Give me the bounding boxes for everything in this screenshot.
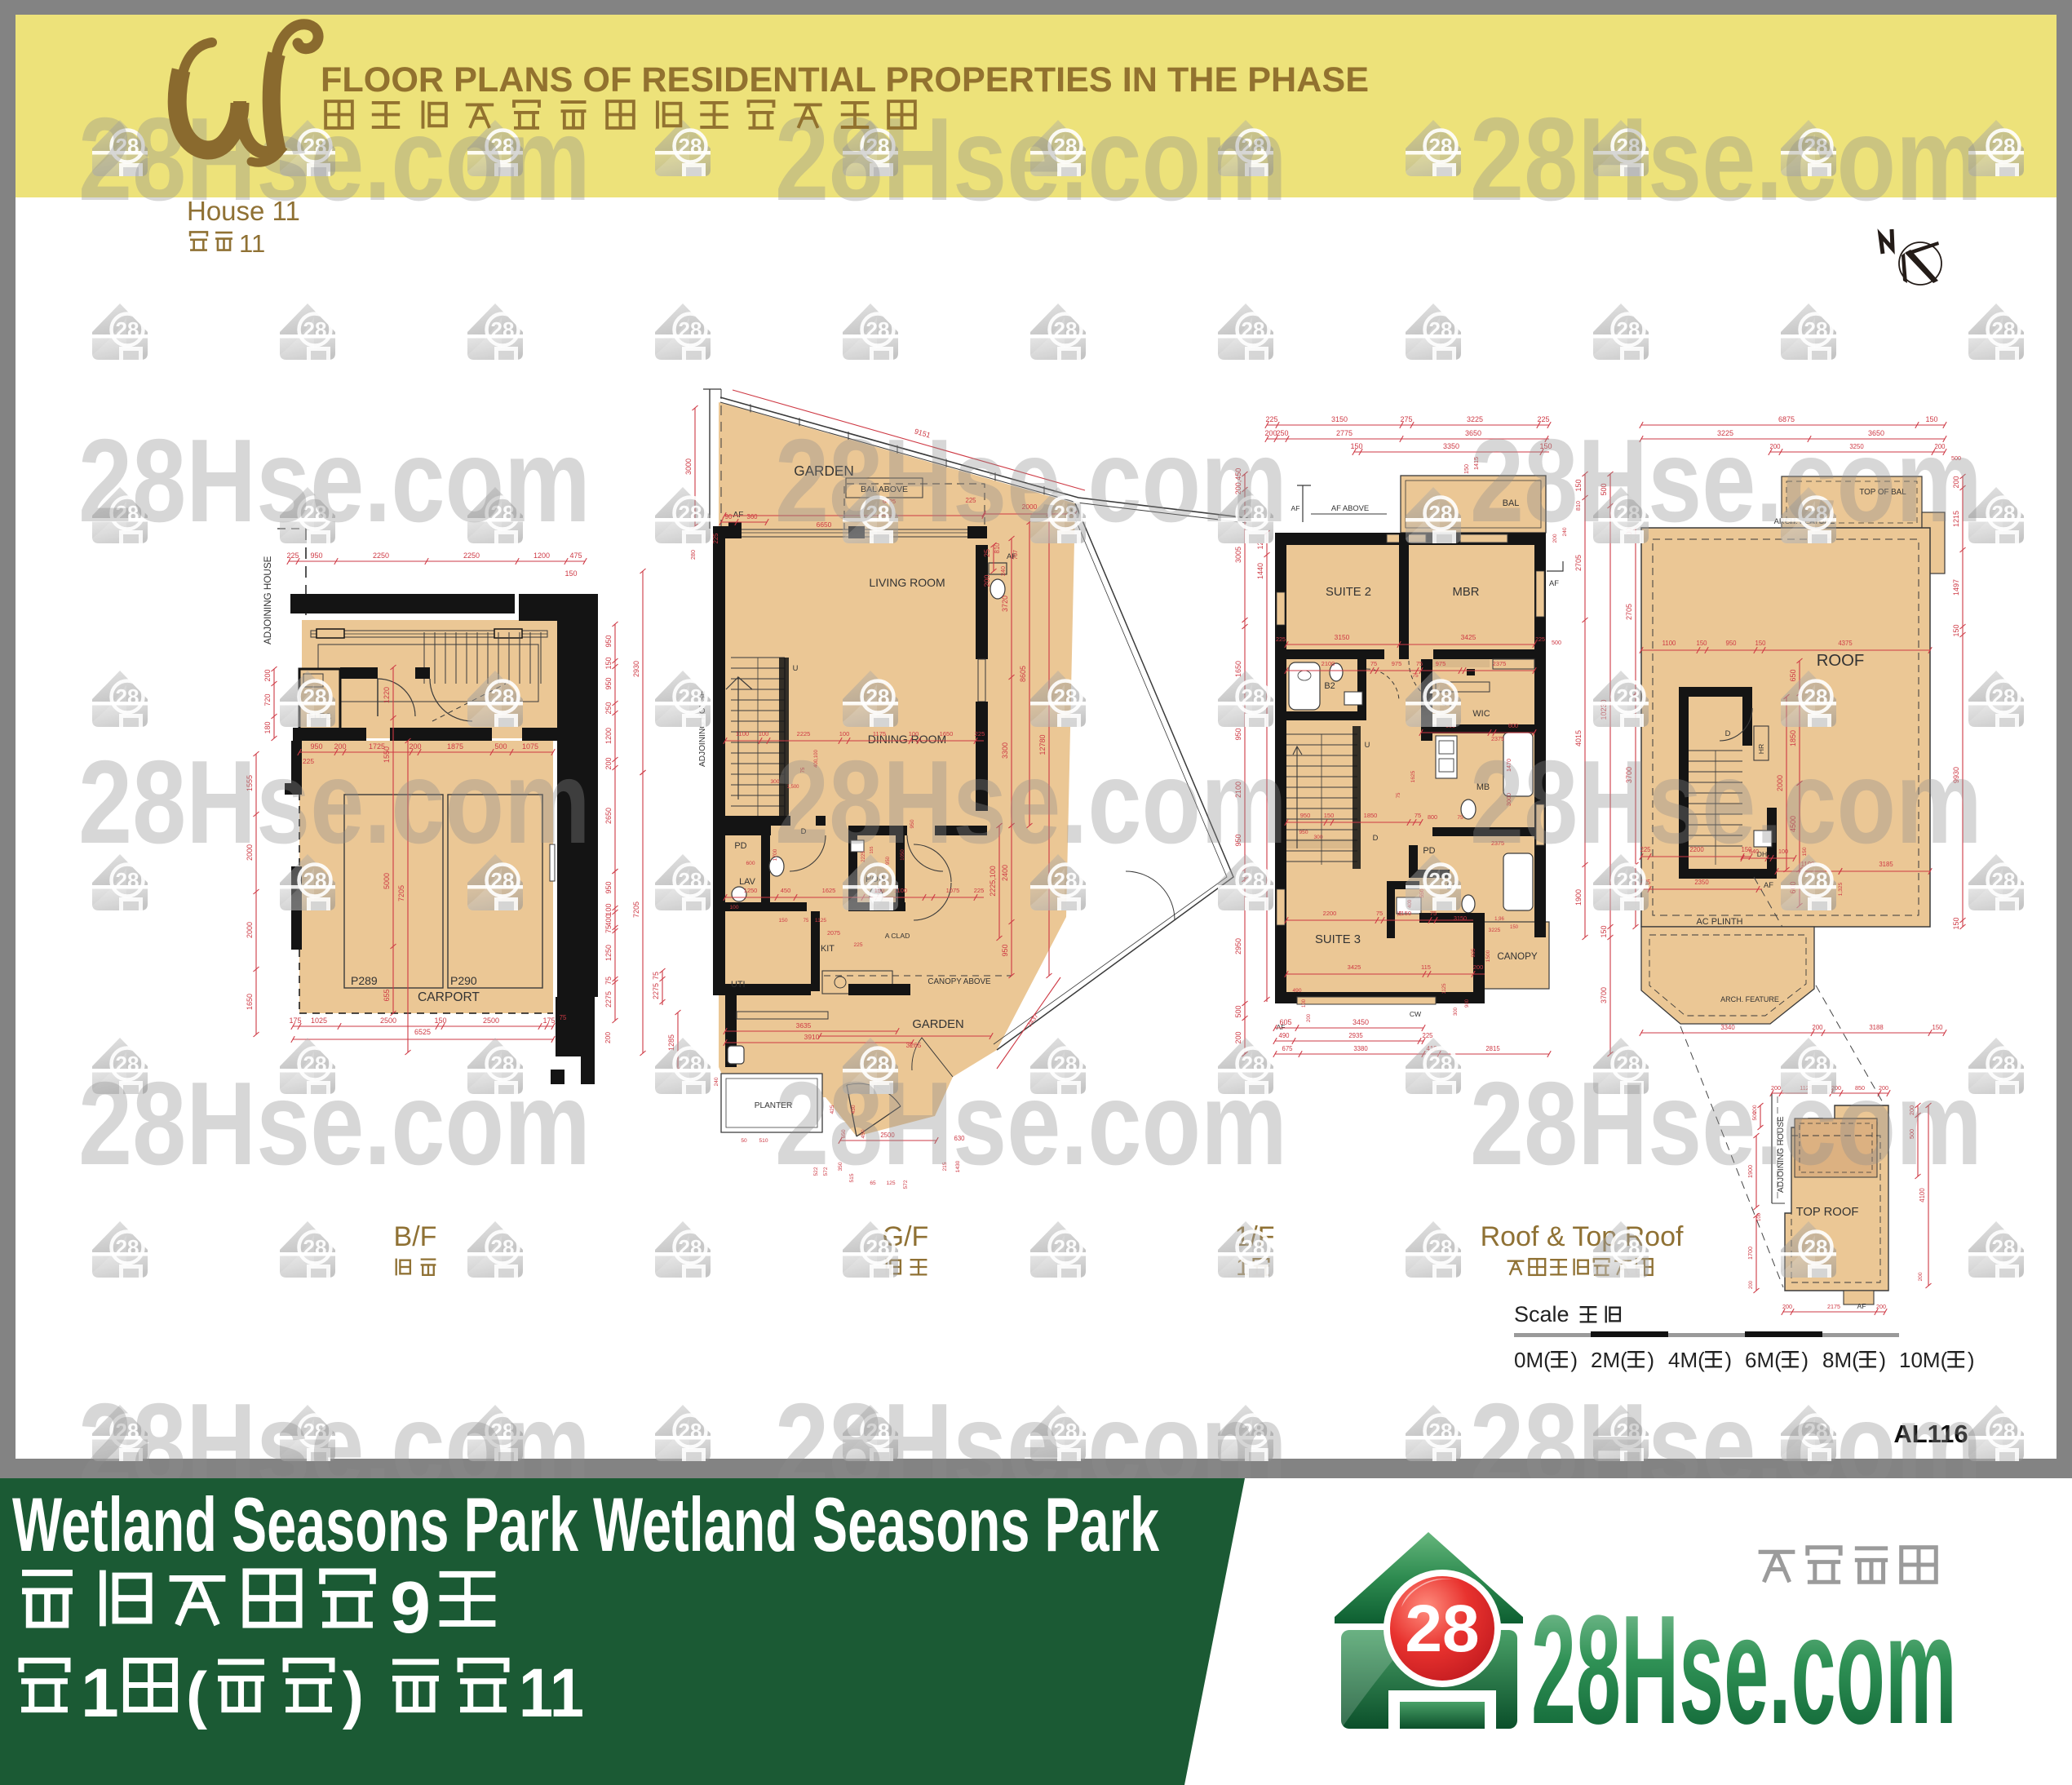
svg-text:28Hse.com: 28Hse.com — [775, 415, 1287, 547]
svg-text:200: 200 — [604, 757, 613, 769]
svg-text:1125: 1125 — [815, 918, 827, 924]
svg-text:1100: 1100 — [736, 730, 749, 737]
svg-text:180: 180 — [263, 721, 272, 733]
svg-text:400: 400 — [604, 914, 613, 926]
svg-text:1500: 1500 — [1485, 950, 1491, 962]
svg-text:75: 75 — [560, 1014, 567, 1021]
svg-text:1650: 1650 — [1234, 661, 1242, 677]
svg-text:600: 600 — [746, 861, 755, 866]
svg-text:CW: CW — [1410, 1010, 1422, 1018]
svg-text:900: 900 — [1465, 999, 1470, 1008]
svg-text:150: 150 — [1324, 812, 1335, 819]
svg-text:2500: 2500 — [483, 1017, 499, 1025]
svg-text:950: 950 — [604, 677, 613, 689]
svg-text:3350: 3350 — [1443, 442, 1459, 450]
svg-text:450: 450 — [781, 887, 791, 894]
svg-text:6525: 6525 — [414, 1028, 431, 1036]
svg-text:75: 75 — [1370, 660, 1377, 667]
svg-text:WIC: WIC — [1472, 709, 1490, 719]
svg-text:TOP ROOF: TOP ROOF — [1796, 1206, 1859, 1219]
svg-text:2350: 2350 — [1694, 879, 1709, 886]
svg-text:2275: 2275 — [604, 991, 613, 1008]
svg-text:): ) — [1570, 1348, 1578, 1372]
svg-text:150: 150 — [1952, 917, 1960, 929]
svg-text:1200: 1200 — [533, 551, 550, 560]
svg-text:757: 757 — [1012, 550, 1019, 560]
svg-text:3700: 3700 — [1600, 987, 1608, 1003]
svg-text:1220: 1220 — [383, 687, 391, 703]
svg-text:150: 150 — [604, 657, 613, 669]
svg-text:200: 200 — [1307, 1013, 1312, 1022]
svg-text:(: ( — [186, 1659, 207, 1730]
svg-text:175: 175 — [289, 1017, 301, 1025]
svg-text:150: 150 — [1350, 442, 1362, 450]
svg-text:28Hse.com: 28Hse.com — [775, 1058, 1287, 1190]
svg-text:200: 200 — [1918, 1272, 1924, 1281]
svg-text:950: 950 — [604, 635, 613, 647]
svg-text:2100: 2100 — [1322, 660, 1335, 667]
svg-text:75: 75 — [1412, 673, 1419, 679]
svg-text:510: 510 — [759, 1138, 768, 1144]
svg-text:950: 950 — [1001, 944, 1009, 956]
svg-text:475: 475 — [569, 551, 582, 560]
svg-text:300: 300 — [1313, 835, 1322, 840]
svg-text:950: 950 — [604, 881, 613, 893]
svg-text:P290: P290 — [450, 974, 477, 987]
svg-text:House 11: House 11 — [187, 196, 300, 226]
svg-text:2M(: 2M( — [1591, 1348, 1627, 1372]
svg-text:275: 275 — [1400, 415, 1412, 423]
svg-text:500: 500 — [1234, 1005, 1242, 1017]
svg-text:250: 250 — [604, 702, 613, 714]
svg-text:2815: 2815 — [1485, 1045, 1500, 1052]
svg-text:1625: 1625 — [822, 887, 836, 894]
svg-text:1100: 1100 — [1662, 640, 1676, 647]
svg-text:2705: 2705 — [1625, 604, 1633, 620]
svg-text:25: 25 — [983, 549, 991, 557]
svg-text:2250: 2250 — [463, 551, 480, 560]
svg-text:7205: 7205 — [632, 901, 640, 918]
svg-text:3150: 3150 — [1454, 915, 1467, 922]
svg-text:3450: 3450 — [1353, 1018, 1369, 1026]
svg-text:240: 240 — [999, 566, 1007, 576]
svg-text:490: 490 — [1292, 988, 1301, 994]
svg-text:3720: 3720 — [1001, 596, 1009, 612]
svg-text:8M(: 8M( — [1822, 1348, 1859, 1372]
svg-text:360: 360 — [746, 513, 758, 520]
svg-text:CARPORT: CARPORT — [418, 990, 480, 1004]
svg-text:1900: 1900 — [1574, 889, 1583, 906]
svg-text:75: 75 — [1457, 815, 1463, 821]
svg-text:1250: 1250 — [744, 887, 758, 894]
svg-text:8605: 8605 — [1019, 666, 1027, 682]
svg-text:ROOF: ROOF — [1817, 652, 1865, 670]
svg-text:75: 75 — [1430, 910, 1437, 917]
svg-text:2000: 2000 — [246, 922, 254, 938]
svg-text:975: 975 — [1392, 660, 1402, 667]
svg-text:3188: 3188 — [1869, 1024, 1883, 1031]
svg-text:3150: 3150 — [1335, 633, 1350, 641]
svg-text:2935: 2935 — [1348, 1032, 1363, 1039]
svg-text:100: 100 — [729, 905, 738, 910]
svg-text:5000: 5000 — [383, 873, 391, 889]
svg-text:75: 75 — [604, 925, 613, 933]
svg-text:AF: AF — [1857, 1302, 1866, 1310]
svg-text:2930: 2930 — [632, 661, 640, 677]
svg-text:AF: AF — [1549, 578, 1559, 587]
svg-text:1125: 1125 — [1442, 983, 1447, 994]
svg-text:U: U — [1365, 740, 1370, 749]
svg-text:200: 200 — [1812, 1024, 1823, 1031]
svg-text:3425: 3425 — [1348, 963, 1361, 971]
svg-text:AF: AF — [1291, 504, 1300, 512]
svg-text:): ) — [343, 1659, 364, 1730]
svg-text:720: 720 — [263, 693, 272, 706]
svg-text:655: 655 — [383, 989, 391, 1001]
svg-text:3000: 3000 — [684, 458, 693, 475]
svg-text:4M(: 4M( — [1668, 1348, 1705, 1372]
svg-text:2225,100: 2225,100 — [989, 866, 997, 897]
svg-text:600: 600 — [1508, 722, 1518, 729]
svg-text:B/F: B/F — [394, 1221, 437, 1252]
svg-text:150: 150 — [1755, 640, 1766, 647]
svg-text:1497: 1497 — [1952, 579, 1960, 596]
svg-text:500: 500 — [1552, 639, 1561, 646]
svg-text:225: 225 — [1422, 1032, 1433, 1039]
svg-text:150: 150 — [564, 569, 577, 578]
svg-text:200: 200 — [1749, 1280, 1754, 1289]
svg-text:2650: 2650 — [604, 808, 613, 824]
svg-text:75: 75 — [604, 977, 613, 985]
svg-text:MBR: MBR — [1453, 586, 1480, 599]
svg-text:PD: PD — [1423, 846, 1435, 856]
svg-text:1850: 1850 — [1364, 812, 1378, 819]
svg-text:GARDEN: GARDEN — [912, 1018, 963, 1031]
svg-text:675: 675 — [1282, 1045, 1293, 1052]
svg-text:3005: 3005 — [1234, 547, 1242, 563]
svg-text:1440: 1440 — [1256, 563, 1264, 579]
svg-text:28Hse.com: 28Hse.com — [1470, 737, 1982, 869]
svg-text:SUITE 2: SUITE 2 — [1326, 586, 1371, 599]
svg-text:AC PLINTH: AC PLINTH — [1697, 917, 1743, 927]
svg-text:3380: 3380 — [1353, 1045, 1368, 1052]
svg-text:FLOOR PLANS OF RESIDENTIAL PRO: FLOOR PLANS OF RESIDENTIAL PROPERTIES IN… — [321, 60, 1369, 100]
svg-text:28Hse.com: 28Hse.com — [78, 415, 591, 547]
svg-text:50: 50 — [741, 1138, 747, 1144]
svg-text:950: 950 — [1725, 640, 1737, 647]
svg-text:200: 200 — [983, 574, 991, 587]
svg-text:28Hse.com: 28Hse.com — [1470, 1058, 1982, 1190]
svg-text:225: 225 — [1276, 636, 1286, 643]
svg-text:AF: AF — [1764, 880, 1773, 889]
svg-text:6M(: 6M( — [1745, 1348, 1782, 1372]
svg-text:1250: 1250 — [604, 945, 613, 961]
svg-text:3635: 3635 — [796, 1021, 812, 1030]
svg-text:4375: 4375 — [1838, 640, 1853, 647]
svg-text:3265: 3265 — [906, 1041, 922, 1049]
svg-text:): ) — [1647, 1348, 1654, 1372]
svg-text:90: 90 — [725, 513, 733, 520]
svg-text:150: 150 — [1600, 925, 1608, 937]
svg-text:1,325: 1,325 — [1838, 882, 1844, 896]
svg-text:): ) — [1879, 1348, 1886, 1372]
svg-text:3150: 3150 — [1331, 415, 1348, 423]
svg-text:28Hse.com: 28Hse.com — [1470, 94, 1982, 226]
svg-text:200: 200 — [1876, 1303, 1886, 1310]
svg-text:200: 200 — [604, 1032, 612, 1043]
svg-text:100: 100 — [759, 730, 769, 737]
svg-text:ADJOINING HOUSE: ADJOINING HOUSE — [263, 556, 273, 644]
svg-text:225: 225 — [853, 942, 862, 948]
svg-text:300: 300 — [1454, 1007, 1459, 1016]
svg-text:995: 995 — [1471, 948, 1477, 957]
svg-text:KIT: KIT — [821, 944, 835, 954]
svg-text:2705: 2705 — [1574, 555, 1583, 571]
svg-text:PD: PD — [734, 841, 746, 851]
svg-text:UTI: UTI — [731, 980, 746, 990]
svg-text:7205: 7205 — [397, 885, 405, 901]
svg-text:1650: 1650 — [246, 994, 254, 1010]
svg-text:200: 200 — [1473, 963, 1484, 971]
svg-text:800: 800 — [1428, 813, 1437, 821]
svg-text:1025: 1025 — [311, 1017, 327, 1025]
svg-text:2075: 2075 — [827, 929, 840, 937]
svg-text:28Hse.com: 28Hse.com — [1531, 1583, 1957, 1756]
svg-text:U: U — [793, 663, 799, 672]
svg-text:SUITE 3: SUITE 3 — [1315, 933, 1361, 946]
svg-text:2175: 2175 — [1827, 1303, 1840, 1310]
svg-text:A CLAD: A CLAD — [885, 932, 910, 940]
svg-text:Roof & Top Roof: Roof & Top Roof — [1481, 1221, 1684, 1252]
svg-text:175: 175 — [542, 1017, 555, 1025]
svg-text:2375: 2375 — [1493, 660, 1507, 667]
svg-text:150: 150 — [1696, 640, 1707, 647]
svg-text:D: D — [1373, 833, 1379, 842]
svg-text:150: 150 — [434, 1017, 446, 1025]
svg-text:P289: P289 — [351, 974, 378, 987]
svg-text:CANOPY: CANOPY — [1497, 951, 1538, 962]
svg-text:10M(: 10M( — [1899, 1348, 1948, 1372]
svg-text:150: 150 — [1932, 1024, 1943, 1031]
svg-text:75: 75 — [804, 919, 809, 924]
svg-text:B2: B2 — [1324, 681, 1335, 691]
svg-text:0M(: 0M( — [1514, 1348, 1551, 1372]
svg-text:100: 100 — [1302, 999, 1307, 1008]
svg-text:115: 115 — [1421, 963, 1431, 971]
svg-text:150: 150 — [1952, 624, 1960, 636]
svg-text:1: 1 — [81, 1654, 119, 1731]
svg-text:LIVING ROOM: LIVING ROOM — [869, 576, 945, 589]
svg-text:28Hse.com: 28Hse.com — [775, 737, 1287, 869]
svg-text:3225: 3225 — [1489, 928, 1501, 933]
svg-text:2275: 2275 — [652, 983, 660, 999]
svg-text:11: 11 — [519, 1654, 584, 1731]
svg-text:950: 950 — [1300, 812, 1311, 819]
svg-text:150: 150 — [1510, 925, 1519, 930]
svg-text:9: 9 — [390, 1567, 431, 1649]
svg-text:1200: 1200 — [604, 728, 613, 744]
svg-text:2950: 2950 — [1234, 938, 1242, 955]
svg-text:2200: 2200 — [1323, 910, 1337, 917]
svg-text:200: 200 — [1234, 1031, 1242, 1043]
svg-text:AF ABOVE: AF ABOVE — [1331, 503, 1369, 512]
svg-text:605: 605 — [1279, 1018, 1291, 1026]
svg-text:200: 200 — [263, 669, 272, 681]
svg-text:2775: 2775 — [1336, 429, 1353, 437]
svg-text:3340: 3340 — [1720, 1024, 1735, 1031]
svg-text:950: 950 — [1299, 830, 1308, 835]
svg-text:100: 100 — [604, 903, 613, 915]
svg-text:200: 200 — [1782, 1303, 1792, 1310]
svg-text:2500: 2500 — [380, 1017, 396, 1025]
svg-text:650: 650 — [1789, 669, 1797, 681]
svg-text:1700: 1700 — [1747, 1247, 1754, 1260]
svg-text:2250: 2250 — [373, 551, 389, 560]
svg-text:28Hse.com: 28Hse.com — [78, 737, 591, 869]
svg-text:75: 75 — [1416, 660, 1423, 667]
svg-text:225: 225 — [1535, 636, 1545, 643]
svg-text:28Hse.com: 28Hse.com — [1470, 415, 1982, 547]
svg-text:240: 240 — [714, 1077, 719, 1086]
svg-text:): ) — [1724, 1348, 1732, 1372]
svg-text:950: 950 — [310, 551, 322, 560]
svg-text:3910: 3910 — [804, 1033, 820, 1041]
svg-text:3425: 3425 — [1461, 633, 1477, 641]
svg-text:150: 150 — [1463, 464, 1470, 474]
svg-text:75: 75 — [1376, 910, 1383, 917]
svg-text:28Hse.com: 28Hse.com — [78, 1058, 591, 1190]
svg-text:75: 75 — [1415, 812, 1421, 819]
svg-text:Scale: Scale — [1514, 1302, 1569, 1327]
svg-text:280: 280 — [689, 550, 697, 560]
svg-text:1,96: 1,96 — [1494, 917, 1504, 922]
svg-text:225: 225 — [286, 551, 299, 560]
svg-text:1625: 1625 — [1410, 770, 1416, 782]
svg-text:150: 150 — [778, 918, 787, 924]
svg-text:): ) — [1968, 1348, 1975, 1372]
svg-text:225: 225 — [712, 533, 719, 544]
svg-text:ARCH. FEATURE: ARCH. FEATURE — [1720, 995, 1779, 1003]
svg-text:490: 490 — [1278, 1032, 1290, 1039]
svg-text:75: 75 — [1397, 792, 1401, 798]
svg-text:225: 225 — [974, 887, 985, 894]
svg-text:Wetland Seasons Park Wetland S: Wetland Seasons Park Wetland Seasons Par… — [12, 1482, 1159, 1567]
svg-text:): ) — [1801, 1348, 1809, 1372]
svg-text:75: 75 — [652, 972, 660, 980]
svg-text:11: 11 — [239, 229, 265, 258]
svg-text:1075: 1075 — [946, 887, 960, 894]
svg-text:28: 28 — [1405, 1592, 1479, 1666]
svg-text:1150: 1150 — [1398, 910, 1411, 917]
svg-text:LAV: LAV — [739, 877, 756, 887]
svg-text:CANOPY ABOVE: CANOPY ABOVE — [928, 977, 991, 986]
svg-text:975: 975 — [1436, 660, 1446, 667]
